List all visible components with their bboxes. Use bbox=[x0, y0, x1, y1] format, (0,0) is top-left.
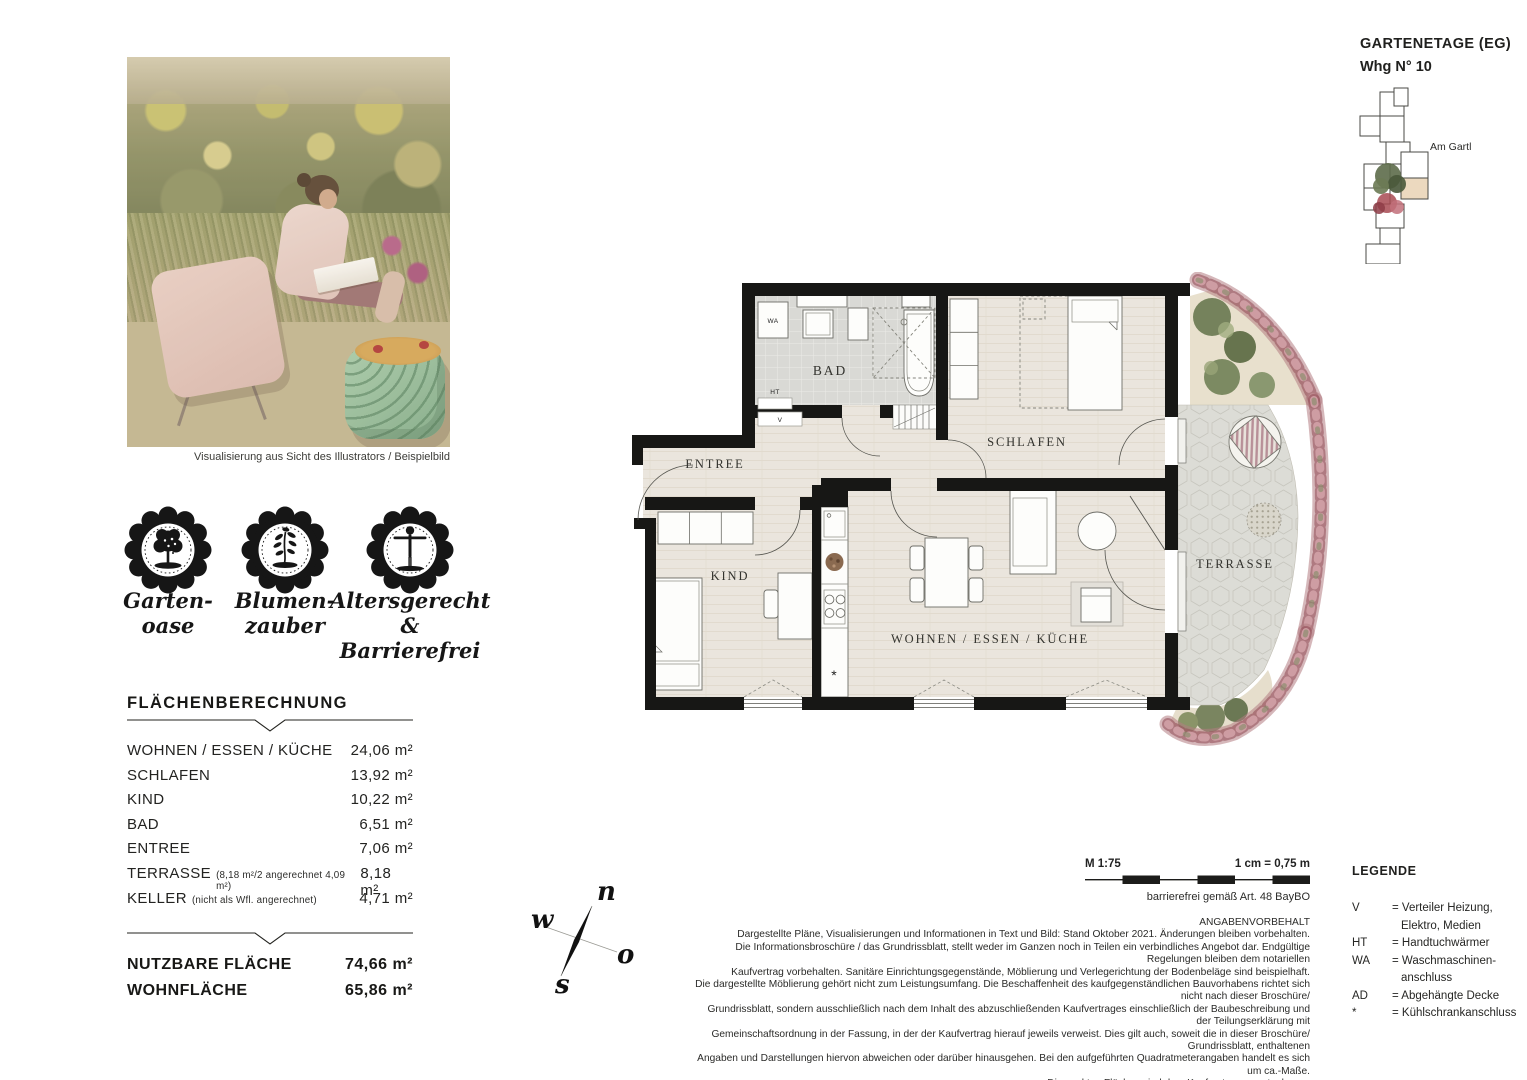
armchair bbox=[1081, 588, 1111, 622]
badge-label-barrierefrei: Altersgerecht & Barrierefrei bbox=[330, 588, 490, 663]
photo-sepia-tint bbox=[127, 57, 450, 447]
photo-caption: Visualisierung aus Sicht des Illustrator… bbox=[127, 451, 450, 463]
badge-label-line: Altersgerecht bbox=[330, 588, 490, 613]
legal-line: ANGABENVORBEHALT bbox=[690, 917, 1310, 929]
ht-mark: HT bbox=[770, 389, 779, 396]
legend-symbol: V bbox=[1352, 900, 1392, 935]
table-total-row: NUTZBARE FLÄCHE74,66 m² bbox=[127, 956, 413, 982]
dining-table bbox=[925, 538, 968, 607]
legend-text: = Verteiler Heizung, bbox=[1392, 902, 1493, 914]
site-plan bbox=[1352, 86, 1502, 264]
garden-tree-icon bbox=[123, 505, 213, 595]
total-label: NUTZBARE FLÄCHE bbox=[127, 956, 292, 982]
lounge-chair bbox=[1229, 416, 1281, 468]
row-label: ENTREE bbox=[127, 840, 190, 857]
total-value: 74,66 m² bbox=[345, 956, 413, 982]
row-value: 13,92 m² bbox=[351, 767, 413, 784]
compass-west: w bbox=[531, 905, 555, 935]
scale-unit: 1 cm = 0,75 m bbox=[1110, 858, 1310, 870]
wa-mark: WA bbox=[767, 318, 778, 325]
desk bbox=[778, 573, 812, 639]
kitchen-units: * bbox=[821, 507, 848, 697]
room-label-entree: ENTREE bbox=[685, 457, 744, 471]
row-value: 6,51 m² bbox=[359, 816, 413, 833]
street-label: Am Gartl bbox=[1430, 141, 1520, 153]
room-label-terrasse: TERRASSE bbox=[1196, 557, 1274, 571]
barrier-free-note: barrierefrei gemäß Art. 48 BayBO bbox=[1010, 891, 1310, 903]
row-value: 4,71 m² bbox=[359, 890, 413, 907]
bed bbox=[1068, 296, 1122, 410]
row-label: SCHLAFEN bbox=[127, 767, 210, 784]
legend-symbol: WA bbox=[1352, 953, 1392, 988]
compass-rose: n w o s bbox=[515, 862, 665, 1012]
legend-symbol: HT bbox=[1352, 935, 1392, 953]
v-mark: V bbox=[778, 417, 783, 424]
legal-line: Angaben und Darstellungen hiervon abweic… bbox=[690, 1053, 1310, 1078]
legal-line: Gemeinschaftsordnung in der Fassung, in … bbox=[690, 1029, 1310, 1054]
compass-needle bbox=[561, 906, 592, 976]
fruit-bowl bbox=[826, 553, 844, 571]
fridge-mark: * bbox=[831, 667, 837, 683]
row-label: TERRASSE bbox=[127, 865, 211, 882]
legal-line: Grundrissblatt, sondern ausschließlich n… bbox=[690, 1004, 1310, 1029]
area-table-totals: NUTZBARE FLÄCHE74,66 m² WOHNFLÄCHE65,86 … bbox=[127, 956, 413, 1008]
row-value: 7,06 m² bbox=[359, 840, 413, 857]
brochure-page: Visualisierung aus Sicht des Illustrator… bbox=[0, 0, 1527, 1080]
stairs bbox=[893, 405, 937, 429]
room-label-schlafen: SCHLAFEN bbox=[987, 435, 1067, 449]
legend-text: anschluss bbox=[1392, 972, 1452, 984]
terrace bbox=[1178, 405, 1298, 705]
row-value: 24,06 m² bbox=[351, 742, 413, 759]
table-row: KIND10,22 m² bbox=[127, 791, 413, 816]
legend-text: = Waschmaschinen- bbox=[1392, 955, 1496, 967]
legal-disclaimer: ANGABENVORBEHALT Dargestellte Pläne, Vis… bbox=[690, 917, 1310, 1080]
legend-title: LEGENDE bbox=[1352, 864, 1522, 878]
floor-plan: * bbox=[622, 272, 1332, 747]
room-label-bad: BAD bbox=[813, 363, 847, 378]
divider-chevron bbox=[127, 718, 413, 734]
table-total-row: WOHNFLÄCHE65,86 m² bbox=[127, 982, 413, 1008]
terrace-glazing bbox=[1178, 552, 1186, 631]
legend-item: HT = Handtuchwärmer bbox=[1352, 935, 1522, 953]
row-note: (8,18 m²/2 angerechnet 4,09 m²) bbox=[216, 870, 360, 892]
legend-text: = Abgehängte Decke bbox=[1392, 988, 1499, 1006]
table-row: SCHLAFEN13,92 m² bbox=[127, 767, 413, 792]
accessible-person-icon bbox=[365, 505, 455, 595]
floor-title: GARTENETAGE (EG) bbox=[1360, 36, 1525, 52]
row-note: (nicht als Wfl. angerechnet) bbox=[192, 895, 317, 906]
area-table: WOHNEN / ESSEN / KÜCHE24,06 m² SCHLAFEN1… bbox=[127, 742, 413, 914]
scale-bar bbox=[1085, 874, 1310, 886]
table-row: WOHNEN / ESSEN / KÜCHE24,06 m² bbox=[127, 742, 413, 767]
table-row: TERRASSE(8,18 m²/2 angerechnet 4,09 m²)8… bbox=[127, 865, 413, 890]
row-label: WOHNEN / ESSEN / KÜCHE bbox=[127, 742, 333, 759]
terrace-bush bbox=[1247, 503, 1281, 537]
sofa bbox=[1010, 490, 1056, 574]
compass-north: n bbox=[597, 877, 616, 907]
legal-line: Kaufvertrag vorbehalten. Sanitäre Einric… bbox=[690, 967, 1310, 979]
desk-chair bbox=[764, 590, 778, 618]
row-label: KELLER bbox=[127, 890, 187, 907]
area-table-title: FLÄCHENBERECHNUNG bbox=[127, 694, 427, 713]
table-row: ENTREE7,06 m² bbox=[127, 840, 413, 865]
legal-line: Die dargestellte Möblierung gehört nicht… bbox=[690, 979, 1310, 1004]
unit-number: Whg N° 10 bbox=[1360, 59, 1525, 75]
legend-item: AD = Abgehängte Decke bbox=[1352, 988, 1522, 1006]
legal-line: Die Informationsbroschüre / das Grundris… bbox=[690, 942, 1310, 967]
total-value: 65,86 m² bbox=[345, 982, 413, 1008]
row-value: 10,22 m² bbox=[351, 791, 413, 808]
divider-chevron bbox=[127, 931, 413, 947]
table-row: BAD6,51 m² bbox=[127, 816, 413, 841]
terrace-glazing bbox=[1178, 419, 1186, 463]
row-label: BAD bbox=[127, 816, 159, 833]
badge-label-line: & Barrierefrei bbox=[330, 613, 490, 663]
legal-line: Dargestellte Pläne, Visualisierungen und… bbox=[690, 929, 1310, 941]
row-label: KIND bbox=[127, 791, 164, 808]
legend-symbol: AD bbox=[1352, 988, 1392, 1006]
legend-symbol: * bbox=[1352, 1005, 1392, 1023]
table-row: KELLER(nicht als Wfl. angerechnet)4,71 m… bbox=[127, 890, 413, 915]
round-table bbox=[1078, 512, 1116, 550]
legend-item: WA = Waschmaschinen- anschluss bbox=[1352, 953, 1522, 988]
compass-east: o bbox=[617, 940, 634, 970]
room-label-kind: KIND bbox=[711, 569, 750, 583]
room-label-wohnen: WOHNEN / ESSEN / KÜCHE bbox=[891, 632, 1089, 646]
legend-item: V = Verteiler Heizung, Elektro, Medien bbox=[1352, 900, 1522, 935]
legend-text: Elektro, Medien bbox=[1392, 920, 1481, 932]
legend-text: = Handtuchwärmer bbox=[1392, 935, 1489, 953]
illustration-photo bbox=[127, 57, 450, 447]
flower-icon bbox=[240, 505, 330, 595]
kids-bed bbox=[652, 578, 702, 690]
legend-text: = Kühlschrankanschluss bbox=[1392, 1005, 1516, 1023]
total-label: WOHNFLÄCHE bbox=[127, 982, 248, 1008]
legend-item: * = Kühlschrankanschluss bbox=[1352, 1005, 1522, 1023]
compass-south: s bbox=[554, 970, 570, 1000]
legend: LEGENDE V = Verteiler Heizung, Elektro, … bbox=[1352, 864, 1522, 1023]
